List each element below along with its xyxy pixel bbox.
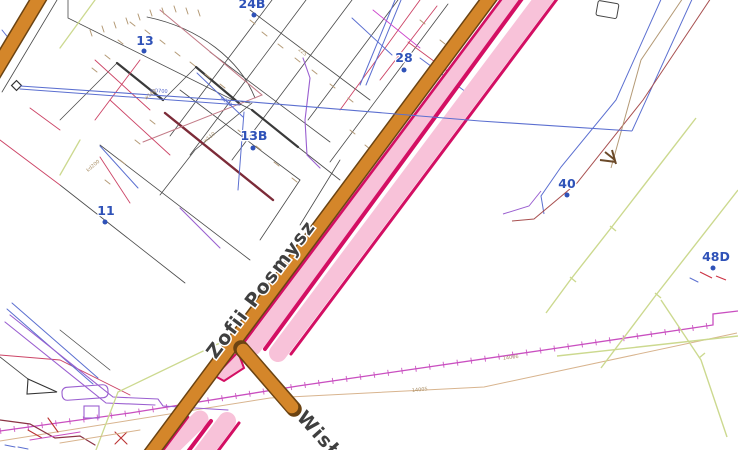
address-marker-13b[interactable]: 13B: [241, 128, 268, 151]
street-label-wisla: Wisła: [292, 407, 353, 450]
address-dot: [103, 220, 108, 225]
address-label: 28: [395, 50, 412, 65]
roads: [0, 0, 497, 450]
micro-annotation: 225: [297, 47, 308, 58]
map-tag-box: [596, 0, 619, 18]
right-boundary-lines: [503, 0, 738, 437]
address-marker-40[interactable]: 40: [558, 176, 576, 198]
address-dot: [252, 13, 257, 18]
bottom-utility-lines: [0, 311, 738, 441]
micro-annotation: kd200: [85, 159, 101, 174]
address-marker-28[interactable]: 28: [395, 50, 412, 73]
address-label: 24B: [239, 0, 266, 11]
magenta-short-line: [373, 10, 420, 48]
corridor-band-outer: [278, 0, 554, 353]
address-dot: [251, 146, 256, 151]
map-viewport[interactable]: Zofii Posmysz Wisła 13 24B 28 13B 11: [0, 0, 738, 450]
green-parcel-lines: [546, 118, 738, 437]
triangle-symbol: [27, 379, 57, 394]
address-marker-48d[interactable]: 48D: [702, 249, 730, 271]
address-label: 13: [136, 33, 153, 48]
maroon-main-line: [165, 113, 273, 200]
address-label: 13B: [241, 128, 268, 143]
survey-cluster-mark: [600, 150, 616, 164]
address-label: 48D: [702, 249, 730, 264]
water-main-line: [20, 86, 632, 131]
violet-utility-lines: [5, 58, 320, 418]
overlay-utility-lines: [20, 86, 632, 131]
address-label: 40: [558, 176, 576, 191]
micro-annotation: w110: [202, 131, 216, 144]
address-dot: [565, 193, 570, 198]
tan-boundary-line: [0, 333, 737, 441]
map-canvas[interactable]: Zofii Posmysz Wisła 13 24B 28 13B 11: [0, 0, 738, 450]
labels-layer: Zofii Posmysz Wisła 13 24B 28 13B 11: [85, 0, 729, 450]
address-dot: [402, 68, 407, 73]
address-dot: [142, 49, 147, 54]
address-marker-13[interactable]: 13: [136, 33, 153, 54]
address-marker-11[interactable]: 11: [97, 203, 114, 225]
pink-curve-line: [143, 10, 262, 142]
address-dot: [711, 266, 716, 271]
micro-annotation: 14006: [502, 354, 519, 362]
micro-annotation: 14005: [412, 386, 428, 394]
address-label: 11: [97, 203, 114, 218]
bottom-left-tangle: [0, 81, 140, 445]
address-marker-24b[interactable]: 24B: [239, 0, 266, 18]
corridor-edge-right: [291, 0, 563, 354]
red-marks-48d: [700, 272, 726, 280]
